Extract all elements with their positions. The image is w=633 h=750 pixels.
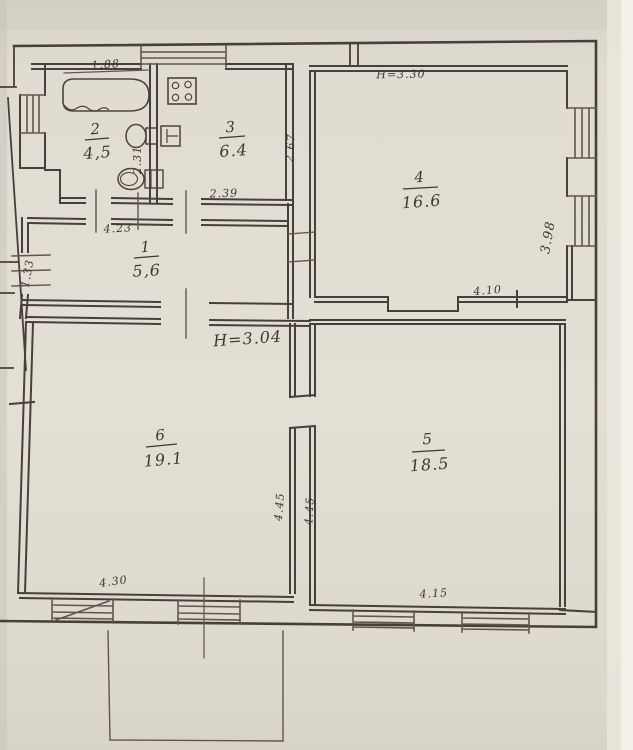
paper-top-shadow [0,0,633,30]
room4-right-wall [567,71,596,300]
room5-top-wall [310,320,565,324]
room6-underline [146,444,177,447]
stove-burner [172,94,178,100]
dim-room5-bottom: 4.15 [418,586,448,601]
kitchen-sink-detail [167,129,178,143]
bath-kitchen-bottom-wall [60,198,293,205]
room2-underline [85,138,109,140]
fixtures [63,78,196,190]
toilet-tank [146,128,157,144]
room4-area: 16.6 [401,191,442,213]
room6-area: 19.1 [143,448,184,470]
dim-room6-bottom: 4.30 [98,573,129,590]
room4-right-window-1 [567,108,596,158]
dim-room4-bottom: 4.10 [472,283,503,299]
room4-right-window-2 [567,196,596,246]
room4-number: 4 [413,168,426,187]
dim-hall-top: 4.23 [102,221,132,236]
room5-right-wall [560,324,565,606]
room6-bottom-window-2 [178,600,240,624]
room3-area: 6.4 [219,140,249,161]
toilet-icon [126,125,146,148]
bathtub-icon [63,79,149,111]
room5-room6-divider-wall [290,324,315,605]
dim-bath-top: 1.88 [91,57,120,72]
paper-right-light-strip [607,0,621,750]
top-window [141,46,226,67]
room5-number: 5 [422,430,434,449]
dim-kitchen-bottom: 2.39 [208,187,238,201]
hall-top-wall [28,218,286,226]
room6-number: 6 [155,426,167,445]
stove-icon [168,78,196,104]
room6-left-wall [10,322,34,593]
room4-underline [403,187,438,189]
height-note-lower: H=3.04 [212,327,283,351]
top-wall-stub [350,43,358,66]
porch-outline [108,631,283,741]
paper-background [0,0,633,750]
paper-left-shadow [0,0,7,750]
room3-underline [219,136,245,138]
bathtub-water-squiggle [64,105,109,111]
stove-burner [172,82,178,88]
room4-bottom-wall [315,291,567,311]
room1-underline [134,256,159,258]
floor-plan-svg: 1 5,6 2 4,5 3 6.4 4 16.6 5 18.5 6 19.1 1… [0,0,633,750]
stove-burner [185,81,191,87]
dim-room5-left: 4.45 [302,496,317,526]
room3-number: 3 [225,118,237,137]
washbasin-counter [145,170,163,188]
dim-wc: 2.31 [131,146,144,176]
room4-top-wall [310,66,567,71]
bathroom-left-window [20,95,45,133]
paper-right-edge [621,0,633,750]
dim-hall-left: 1.33 [19,258,37,288]
dim-room6-right: 4.45 [272,492,288,523]
room5-bottom-window-1 [353,610,414,631]
floor-plan-photo: 1 5,6 2 4,5 3 6.4 4 16.6 5 18.5 6 19.1 1… [0,0,633,750]
room1-number: 1 [140,238,151,257]
room6-bottom-wall [18,593,293,602]
room2-number: 2 [89,120,102,139]
kitchen-room4-shaft-wall [286,64,315,318]
room6-bottom-window-1 [52,598,113,623]
room1-area: 5,6 [132,260,161,280]
dim-room4-right: 3.98 [538,220,558,255]
hall-bottom-wall [22,300,310,326]
room5-area: 18.5 [409,454,450,476]
dim-kitchen-right: 2.67 [283,133,298,163]
stove-burner [185,94,191,100]
room5-underline [412,450,445,452]
room2-area: 4,5 [82,142,113,163]
height-note-upper: H=3.30 [375,68,426,82]
room5-bottom-window-2 [462,612,529,633]
